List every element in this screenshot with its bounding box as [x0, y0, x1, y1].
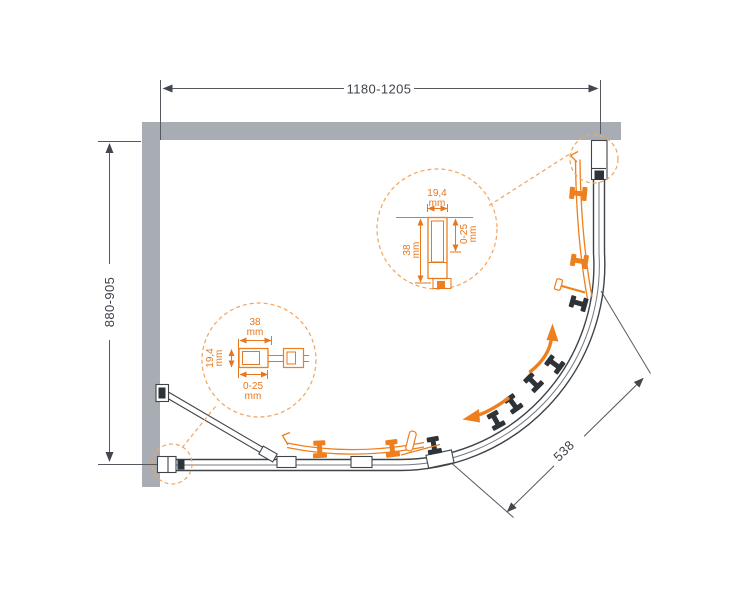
enclosure-rail	[158, 178, 605, 471]
door-roller	[568, 294, 589, 312]
detail-top-width-unit: mm	[429, 198, 446, 209]
width-dimension-label: 1180-1205	[347, 82, 412, 97]
detail-leader-line	[181, 407, 216, 450]
detail-top-adjust-unit: mm	[468, 226, 479, 243]
detail-leader-line	[489, 153, 572, 206]
door-roller-orange	[312, 440, 327, 458]
sliding-door-right	[554, 152, 592, 300]
top-wall	[142, 122, 621, 140]
detail-top-height-unit: mm	[411, 242, 422, 259]
detail-bottom-height-unit: mm	[214, 350, 225, 367]
left-wall	[142, 122, 160, 487]
door-roller	[502, 392, 524, 414]
wall-profile-top	[592, 141, 608, 181]
detail-bottom-width-unit: mm	[247, 327, 264, 338]
slide-direction-arrow-down	[463, 399, 509, 423]
sliding-door-bottom	[283, 430, 441, 458]
door-handle	[554, 278, 563, 290]
depth-dimension-label: 880-905	[102, 277, 117, 328]
detail-circle-top	[377, 169, 497, 289]
glass-clamp	[277, 457, 296, 468]
shower-enclosure-plan-drawing: 1180-1205 880-905 538	[0, 0, 750, 600]
glass-clamp	[351, 457, 372, 468]
door-roller	[425, 436, 442, 456]
diagonal-dimension: 538	[432, 291, 651, 518]
technical-drawing-canvas: 1180-1205 880-905 538	[0, 0, 750, 600]
profile-section	[428, 218, 447, 279]
door-roller-orange	[570, 253, 589, 270]
door-roller	[522, 371, 544, 393]
door-roller-orange	[569, 186, 588, 201]
detail-bottom-adjust-unit: mm	[245, 391, 262, 402]
